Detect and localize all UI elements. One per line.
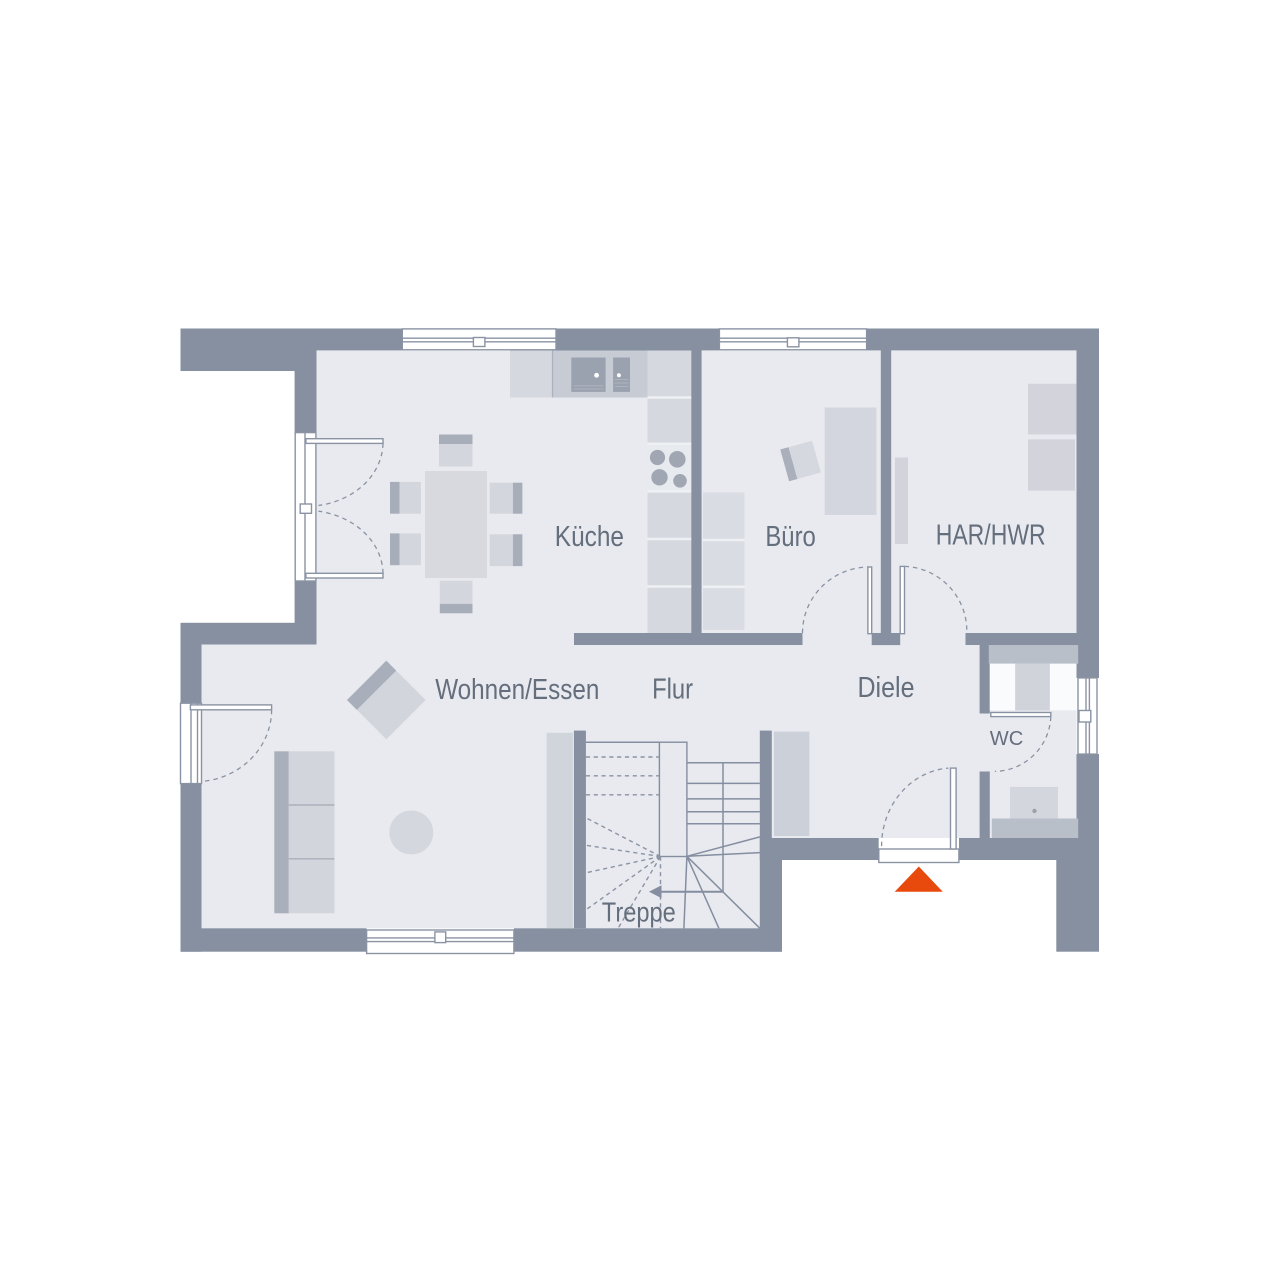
svg-text:Wohnen/Essen: Wohnen/Essen bbox=[435, 674, 599, 706]
svg-text:Küche: Küche bbox=[555, 521, 624, 553]
svg-text:Büro: Büro bbox=[765, 521, 815, 553]
svg-text:Flur: Flur bbox=[652, 674, 693, 706]
svg-text:Treppe: Treppe bbox=[602, 897, 676, 928]
svg-text:Diele: Diele bbox=[858, 672, 915, 704]
svg-text:HAR/HWR: HAR/HWR bbox=[936, 520, 1046, 552]
svg-text:WC: WC bbox=[990, 727, 1024, 750]
